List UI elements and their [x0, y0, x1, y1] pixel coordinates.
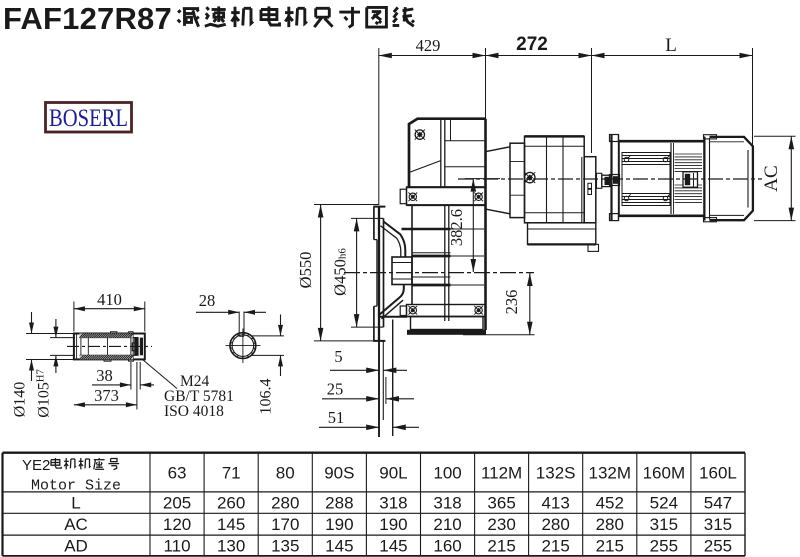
- svg-text:190: 190: [379, 515, 407, 534]
- svg-text:429: 429: [416, 36, 441, 55]
- svg-text:170: 170: [271, 515, 299, 534]
- svg-text:280: 280: [541, 515, 569, 534]
- svg-text:255: 255: [704, 537, 732, 556]
- svg-text:120: 120: [163, 515, 191, 534]
- svg-text:112M: 112M: [481, 463, 522, 482]
- svg-text:272: 272: [516, 34, 548, 55]
- svg-text:547: 547: [704, 494, 732, 513]
- svg-text:255: 255: [650, 537, 678, 556]
- svg-text:288: 288: [325, 494, 353, 513]
- svg-text:Ø450h6: Ø450h6: [331, 248, 350, 296]
- svg-text:236: 236: [502, 290, 521, 315]
- svg-text:452: 452: [596, 494, 624, 513]
- svg-text:160M: 160M: [643, 463, 686, 482]
- svg-text:145: 145: [379, 537, 407, 556]
- svg-text:145: 145: [217, 515, 245, 534]
- svg-text:YE2: YE2: [22, 457, 50, 474]
- svg-text:Ø105H7: Ø105H7: [36, 369, 53, 417]
- svg-text:63: 63: [168, 463, 187, 482]
- svg-text:260: 260: [217, 494, 245, 513]
- svg-text:524: 524: [650, 494, 678, 513]
- svg-text:132M: 132M: [588, 463, 631, 482]
- svg-text:135: 135: [271, 537, 299, 556]
- svg-text:315: 315: [650, 515, 678, 534]
- svg-text:Ø140: Ø140: [12, 382, 29, 418]
- svg-text:215: 215: [487, 537, 515, 556]
- svg-text:205: 205: [163, 494, 191, 513]
- svg-text:106.4: 106.4: [258, 379, 275, 415]
- svg-text:28: 28: [199, 291, 216, 310]
- svg-text:318: 318: [379, 494, 407, 513]
- svg-text:280: 280: [596, 515, 624, 534]
- svg-text:382.6: 382.6: [447, 209, 466, 246]
- svg-text:FAF127R87: FAF127R87: [3, 1, 172, 36]
- svg-text:210: 210: [433, 515, 461, 534]
- svg-text:130: 130: [217, 537, 245, 556]
- svg-text:318: 318: [433, 494, 461, 513]
- svg-text:Ø550: Ø550: [296, 252, 315, 289]
- svg-text:25: 25: [327, 380, 344, 399]
- svg-text:215: 215: [541, 537, 569, 556]
- svg-text:110: 110: [163, 537, 190, 556]
- svg-text:410: 410: [97, 290, 122, 309]
- svg-text:90L: 90L: [379, 463, 407, 482]
- svg-text:373: 373: [94, 386, 119, 405]
- svg-text:BOSERL: BOSERL: [49, 105, 128, 132]
- svg-text:Motor Size: Motor Size: [31, 478, 121, 495]
- svg-text:ISO 4018: ISO 4018: [164, 403, 224, 420]
- svg-text:5: 5: [334, 347, 342, 366]
- svg-text:413: 413: [541, 494, 569, 513]
- svg-text:L: L: [665, 35, 677, 56]
- svg-text:215: 215: [596, 537, 624, 556]
- svg-text:315: 315: [704, 515, 732, 534]
- svg-text:71: 71: [222, 463, 241, 482]
- svg-text:280: 280: [271, 494, 299, 513]
- svg-text:160L: 160L: [699, 463, 737, 482]
- svg-text:90S: 90S: [324, 463, 354, 482]
- svg-text:230: 230: [487, 515, 515, 534]
- svg-text:AC: AC: [761, 165, 782, 191]
- svg-text:145: 145: [325, 537, 353, 556]
- svg-text:AD: AD: [64, 537, 88, 556]
- svg-text:132S: 132S: [536, 463, 576, 482]
- svg-text:38: 38: [96, 366, 113, 385]
- svg-text:190: 190: [325, 515, 353, 534]
- svg-text:100: 100: [433, 463, 461, 482]
- svg-text:L: L: [71, 494, 80, 513]
- svg-text:AC: AC: [64, 515, 88, 534]
- svg-text:160: 160: [433, 537, 461, 556]
- svg-text:80: 80: [276, 463, 295, 482]
- svg-text:51: 51: [328, 408, 345, 427]
- svg-text:365: 365: [487, 494, 515, 513]
